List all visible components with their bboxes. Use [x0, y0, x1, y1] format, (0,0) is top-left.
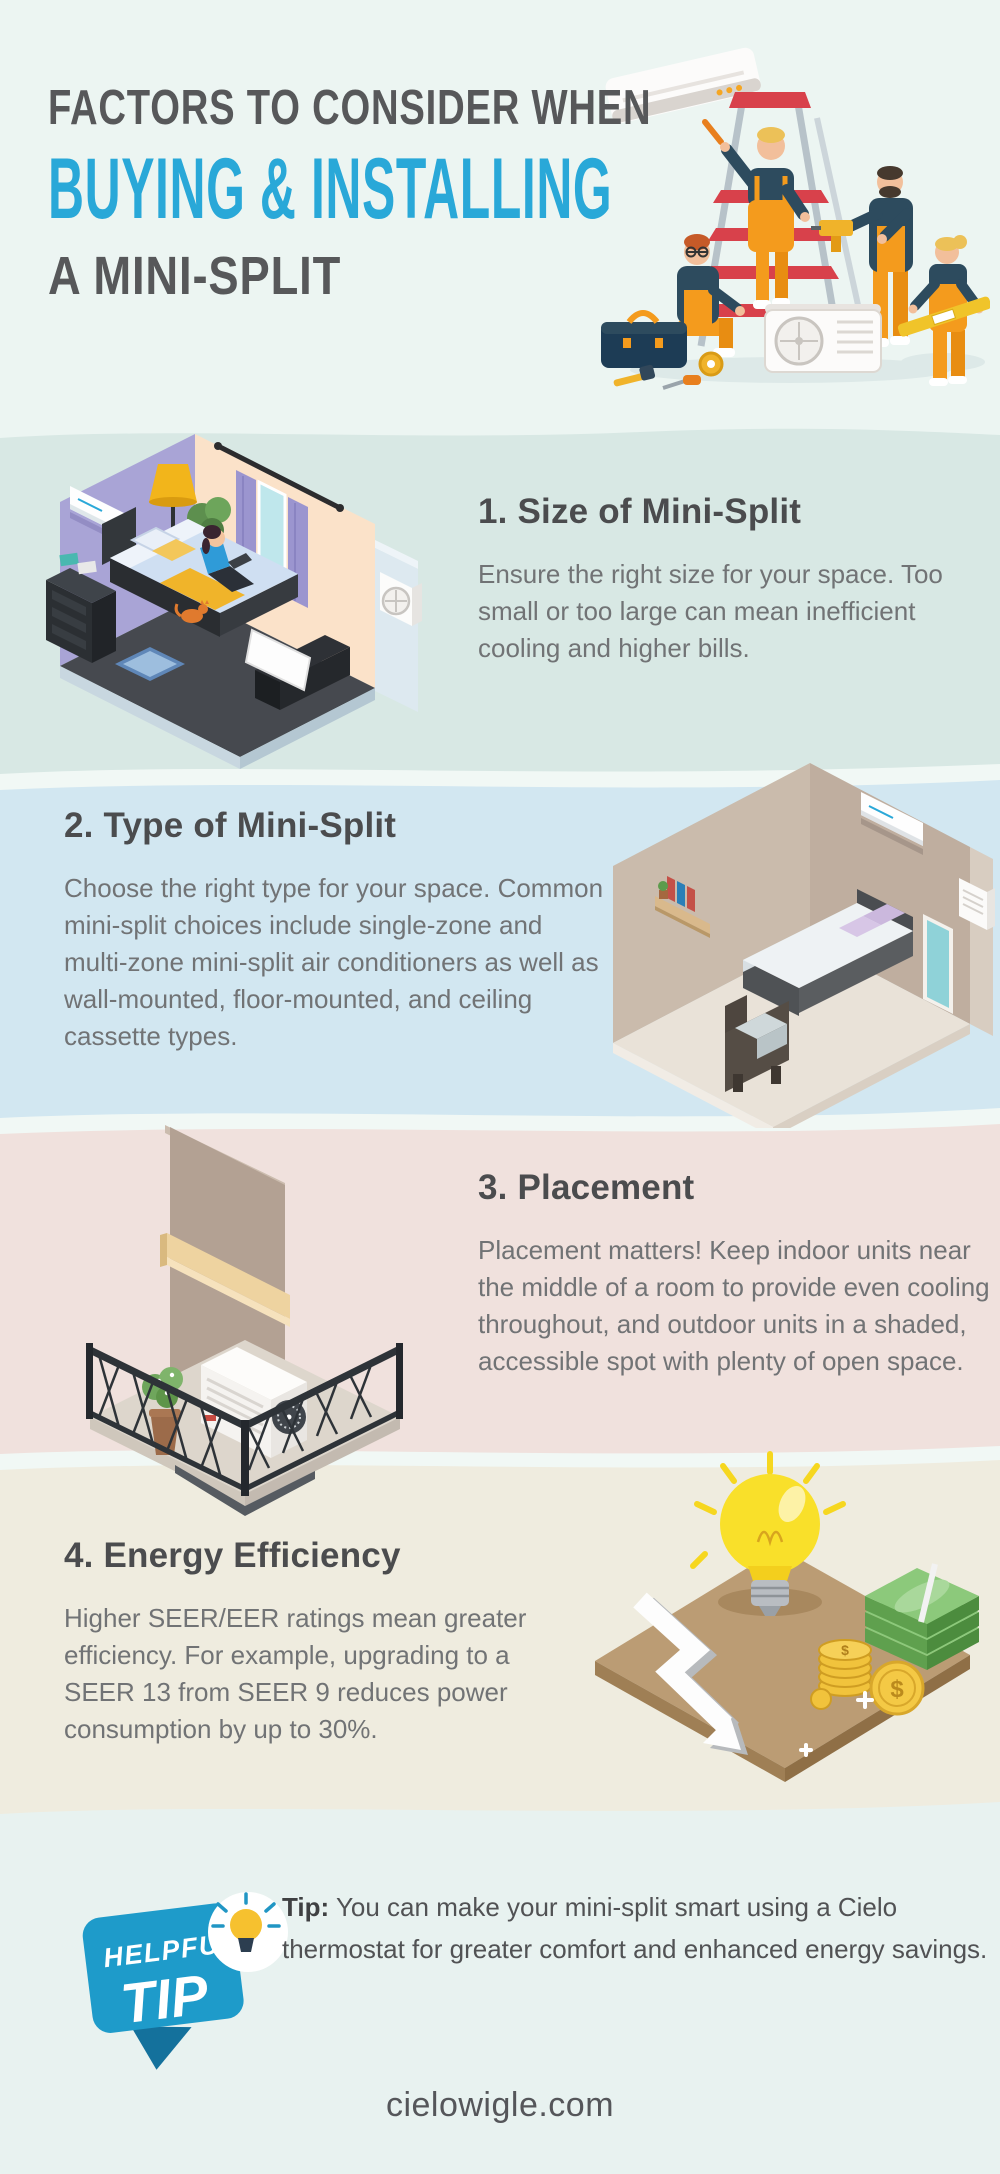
infographic-page: FACTORS TO CONSIDER WHEN BUYING & INSTAL…	[0, 0, 1000, 2174]
bedroom-size-illustration	[40, 420, 470, 796]
tip-text: You can make your mini-split smart using…	[282, 1892, 987, 1964]
outdoor-unit-icon	[765, 304, 881, 372]
helpful-tip-badge: HELPFUL TIP	[70, 1880, 300, 2075]
tip-label: Tip:	[282, 1892, 329, 1922]
section-4-text: 4. Energy Efficiency Higher SEER/EER rat…	[64, 1536, 576, 1748]
toolbox-icon	[601, 313, 687, 368]
page-title: BUYING & INSTALLING	[48, 146, 612, 232]
section-4-heading: 4. Energy Efficiency	[64, 1536, 576, 1576]
svg-text:$: $	[841, 1642, 849, 1658]
bedroom-type-illustration	[575, 748, 995, 1128]
section-2-heading: 2. Type of Mini-Split	[64, 806, 609, 846]
tip-badge-word2: TIP	[117, 1962, 212, 2035]
section-1-heading: 1. Size of Mini-Split	[478, 492, 990, 532]
section-3-heading: 3. Placement	[478, 1168, 990, 1208]
balcony-placement-illustration	[55, 1125, 455, 1535]
page-subtitle: A MINI-SPLIT	[48, 249, 865, 303]
section-2-text: 2. Type of Mini-Split Choose the right t…	[64, 806, 609, 1055]
website-link[interactable]: cielowigle.com	[0, 2086, 1000, 2125]
title-kicker: FACTORS TO CONSIDER WHEN	[48, 84, 807, 133]
section-2-body: Choose the right type for your space. Co…	[64, 870, 609, 1055]
section-4-body: Higher SEER/EER ratings mean greater eff…	[64, 1600, 576, 1748]
svg-text:$: $	[890, 1676, 904, 1703]
section-1-body: Ensure the right size for your space. To…	[478, 556, 990, 667]
page-title-block: FACTORS TO CONSIDER WHEN BUYING & INSTAL…	[48, 84, 1000, 303]
section-3-body: Placement matters! Keep indoor units nea…	[478, 1232, 990, 1380]
glass-door-icon	[923, 914, 953, 1014]
section-3-text: 3. Placement Placement matters! Keep ind…	[478, 1168, 990, 1380]
section-1-text: 1. Size of Mini-Split Ensure the right s…	[478, 492, 990, 667]
tip-paragraph: Tip: You can make your mini-split smart …	[282, 1886, 988, 1970]
energy-savings-illustration: $ $	[545, 1450, 995, 1815]
exterior-wall-outdoor-unit	[375, 540, 422, 712]
